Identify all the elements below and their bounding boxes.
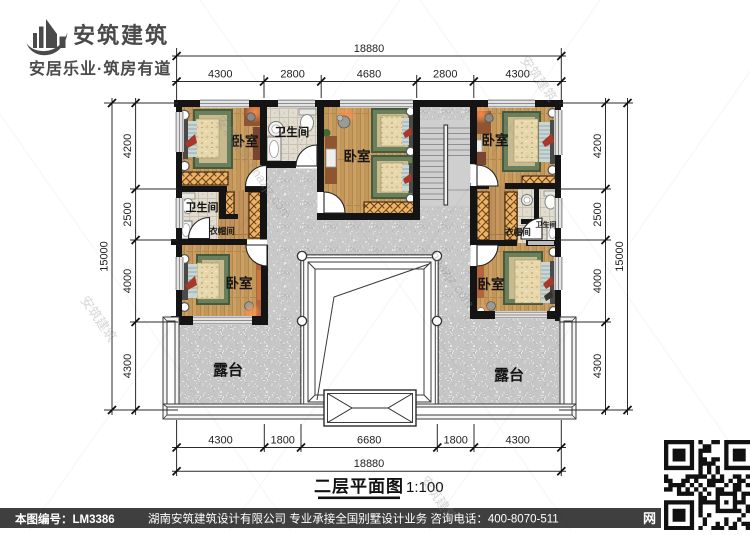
svg-text:衣帽间: 衣帽间 (505, 227, 531, 237)
svg-text:露台: 露台 (213, 361, 243, 379)
svg-text:二层平面图: 二层平面图 (314, 477, 404, 496)
svg-text:2800: 2800 (433, 69, 457, 81)
svg-text:2800: 2800 (280, 69, 304, 81)
svg-text:安筑建筑: 安筑建筑 (73, 23, 169, 48)
svg-text:4300: 4300 (122, 354, 134, 378)
svg-text:卧室: 卧室 (344, 148, 371, 164)
svg-text:4000: 4000 (122, 269, 134, 293)
svg-text:6680: 6680 (357, 435, 381, 447)
svg-text:卫生间: 卫生间 (536, 220, 557, 229)
svg-text:4200: 4200 (122, 134, 134, 158)
svg-text:4300: 4300 (592, 354, 604, 378)
svg-text:4200: 4200 (592, 134, 604, 158)
svg-text:2500: 2500 (122, 202, 134, 226)
svg-text:衣帽间: 衣帽间 (209, 226, 235, 236)
svg-text:网: 网 (643, 511, 656, 526)
svg-text:1800: 1800 (443, 435, 467, 447)
svg-text:4680: 4680 (357, 69, 381, 81)
svg-text:4000: 4000 (592, 269, 604, 293)
svg-text:卧室: 卧室 (482, 132, 509, 148)
svg-text:卫生间: 卫生间 (186, 200, 219, 214)
svg-text:4300: 4300 (208, 435, 232, 447)
svg-text:本图编号：LM3386: 本图编号：LM3386 (15, 512, 115, 526)
svg-text:安居乐业·筑房有道: 安居乐业·筑房有道 (29, 59, 171, 78)
svg-text:15000: 15000 (99, 241, 111, 272)
svg-text:湖南安筑建筑设计有限公司 专业承接全国别墅设计业务 咨询: 湖南安筑建筑设计有限公司 专业承接全国别墅设计业务 咨询电话：400-8070-… (148, 512, 559, 526)
svg-text:18880: 18880 (354, 458, 385, 470)
svg-text:卧室: 卧室 (478, 276, 505, 292)
svg-text:4300: 4300 (208, 69, 232, 81)
svg-text:2500: 2500 (592, 202, 604, 226)
svg-text:露台: 露台 (494, 366, 524, 384)
svg-text:4300: 4300 (505, 435, 529, 447)
svg-text:卧室: 卧室 (226, 275, 253, 291)
